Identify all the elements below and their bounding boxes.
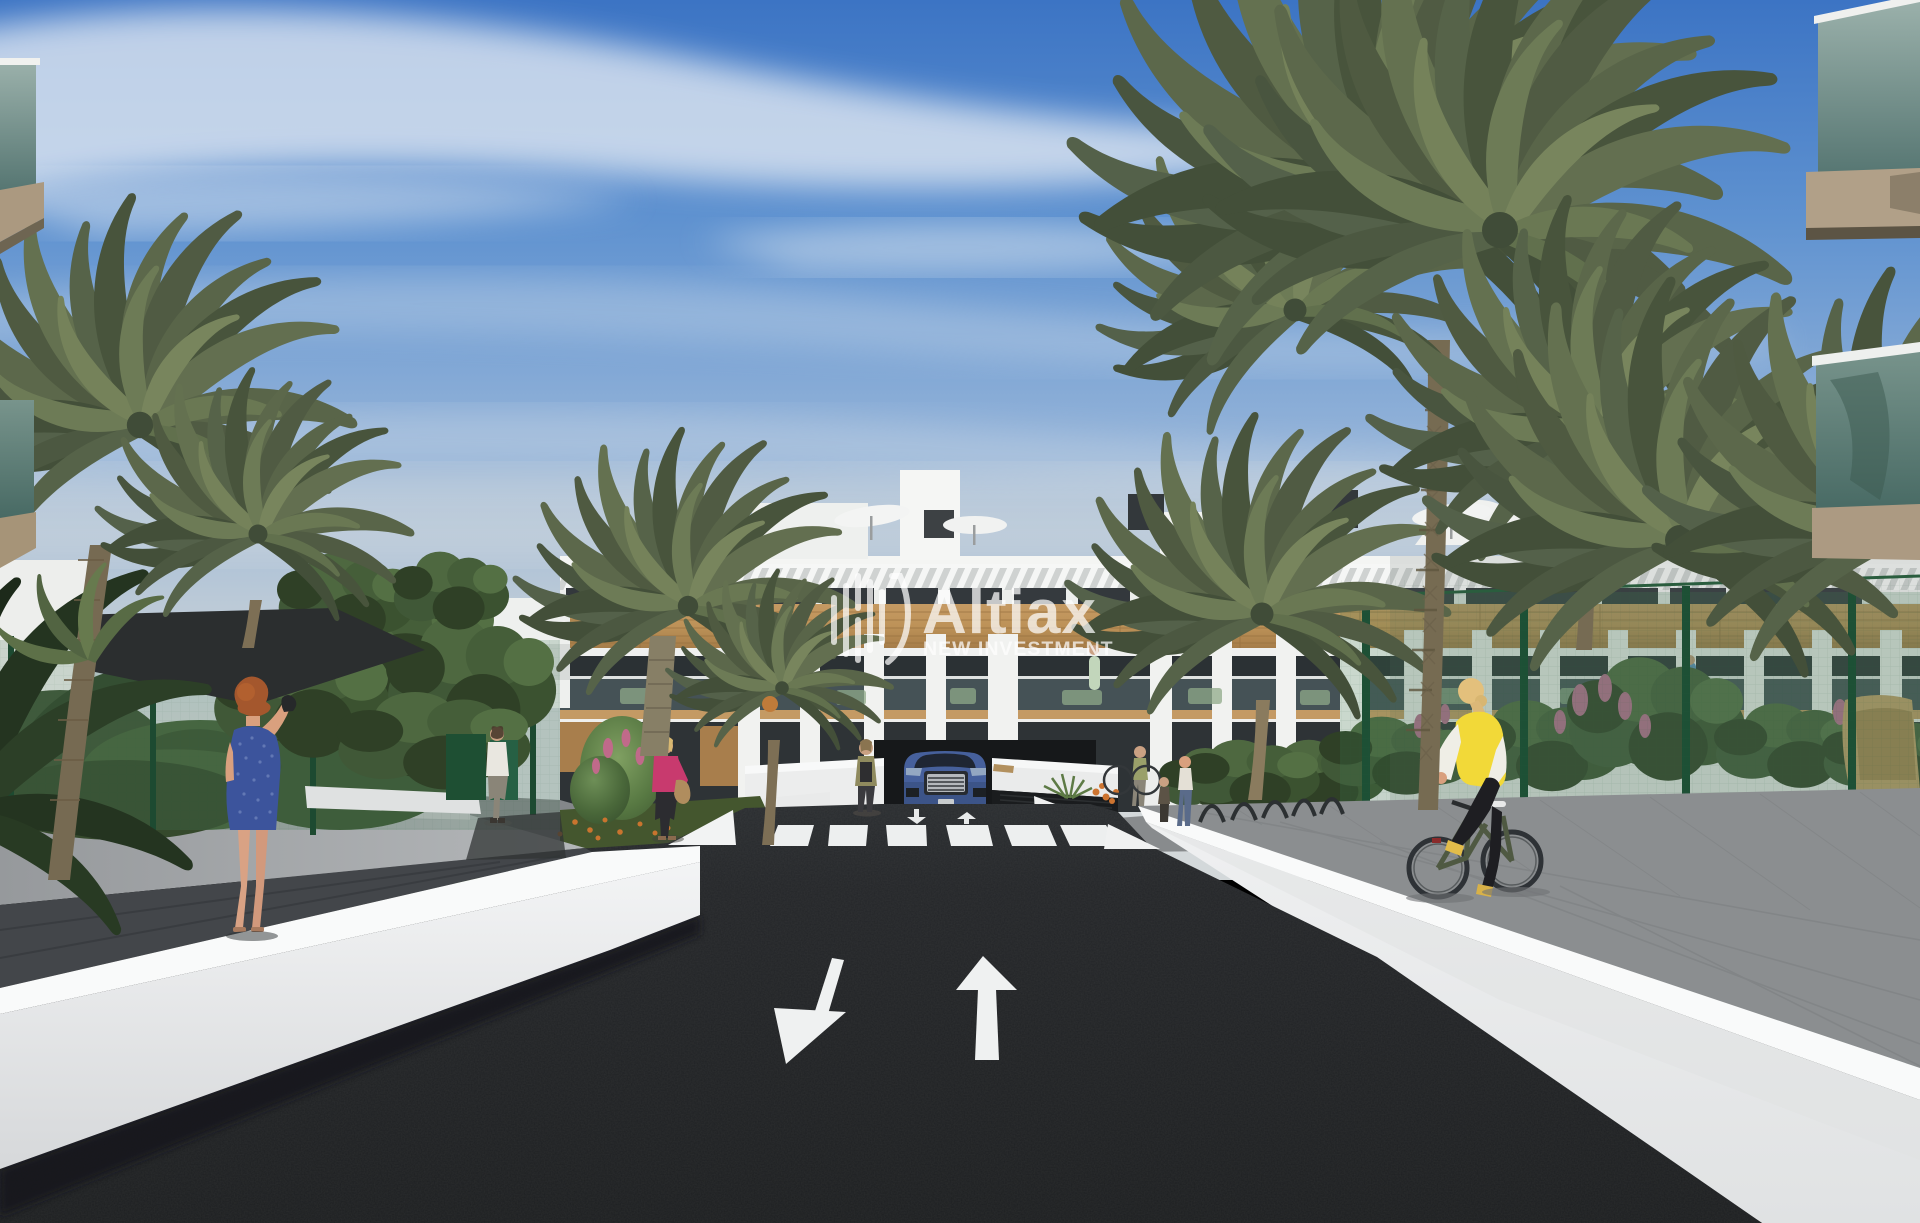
svg-text:Altiax: Altiax [922,578,1097,647]
svg-text:NEW INVESTMENT: NEW INVESTMENT [923,638,1114,660]
